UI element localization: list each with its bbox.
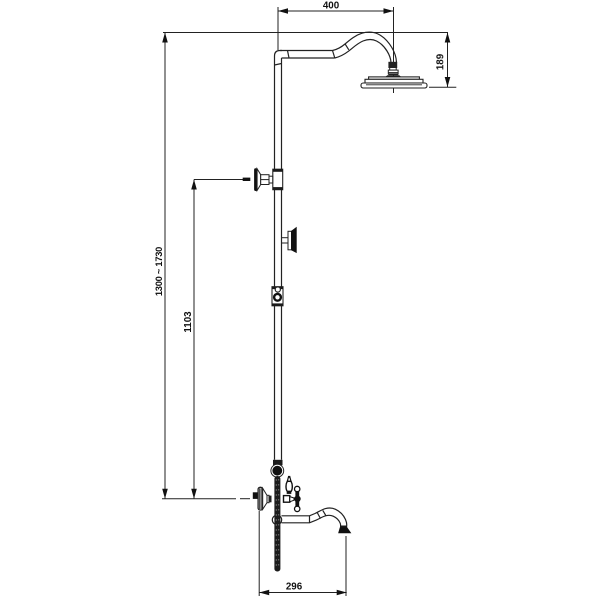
svg-text:1103: 1103 <box>183 311 194 333</box>
svg-text:1300 ~ 1730: 1300 ~ 1730 <box>154 247 164 296</box>
svg-text:189: 189 <box>435 53 446 70</box>
svg-text:400: 400 <box>323 1 340 12</box>
svg-text:296: 296 <box>286 582 303 593</box>
